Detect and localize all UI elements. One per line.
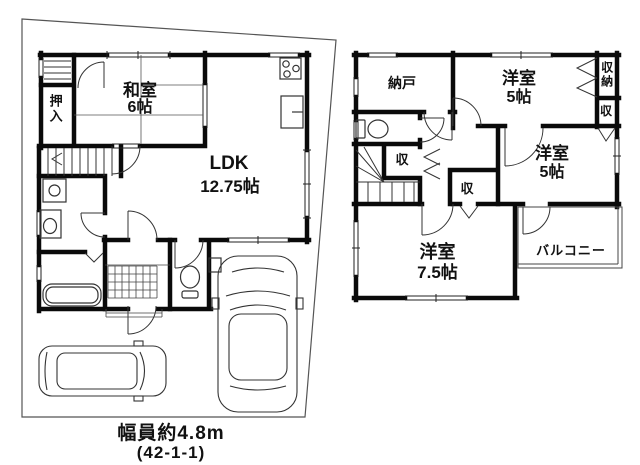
room-label-bedroom3: 洋室 bbox=[405, 243, 470, 262]
room-size-bedroom3: 7.5帖 bbox=[405, 264, 470, 282]
balcony-label: バルコニー bbox=[528, 244, 614, 258]
closet-label-shuno: 収納 bbox=[600, 61, 613, 89]
room-size-washitsu: 6帖 bbox=[106, 100, 174, 117]
road-width-caption: 幅員約4.8m bbox=[71, 424, 271, 444]
room-label-ldk: LDK bbox=[193, 154, 265, 174]
room-label-oshiire: 押入 bbox=[48, 94, 62, 124]
room-size-ldk: 12.75帖 bbox=[188, 178, 272, 196]
closet-label-right: 収 bbox=[596, 105, 616, 118]
room-label-washitsu: 和室 bbox=[106, 82, 174, 100]
room-label-bedroom1: 洋室 bbox=[489, 70, 549, 88]
room-size-bedroom2: 5帖 bbox=[522, 165, 582, 182]
room-size-bedroom1: 5帖 bbox=[489, 90, 549, 107]
closet-label-stairs: 収 bbox=[391, 153, 413, 167]
closet-label-mid: 収 bbox=[456, 182, 478, 196]
room-label-bedroom2: 洋室 bbox=[522, 145, 582, 163]
lot-number-caption: (42-1-1) bbox=[71, 444, 271, 462]
floor-plan-page: 和室 6帖 押入 LDK 12.75帖 幅員約4.8m (42-1-1) 納戸 … bbox=[0, 0, 640, 465]
room-label-nando: 納戸 bbox=[374, 76, 430, 91]
